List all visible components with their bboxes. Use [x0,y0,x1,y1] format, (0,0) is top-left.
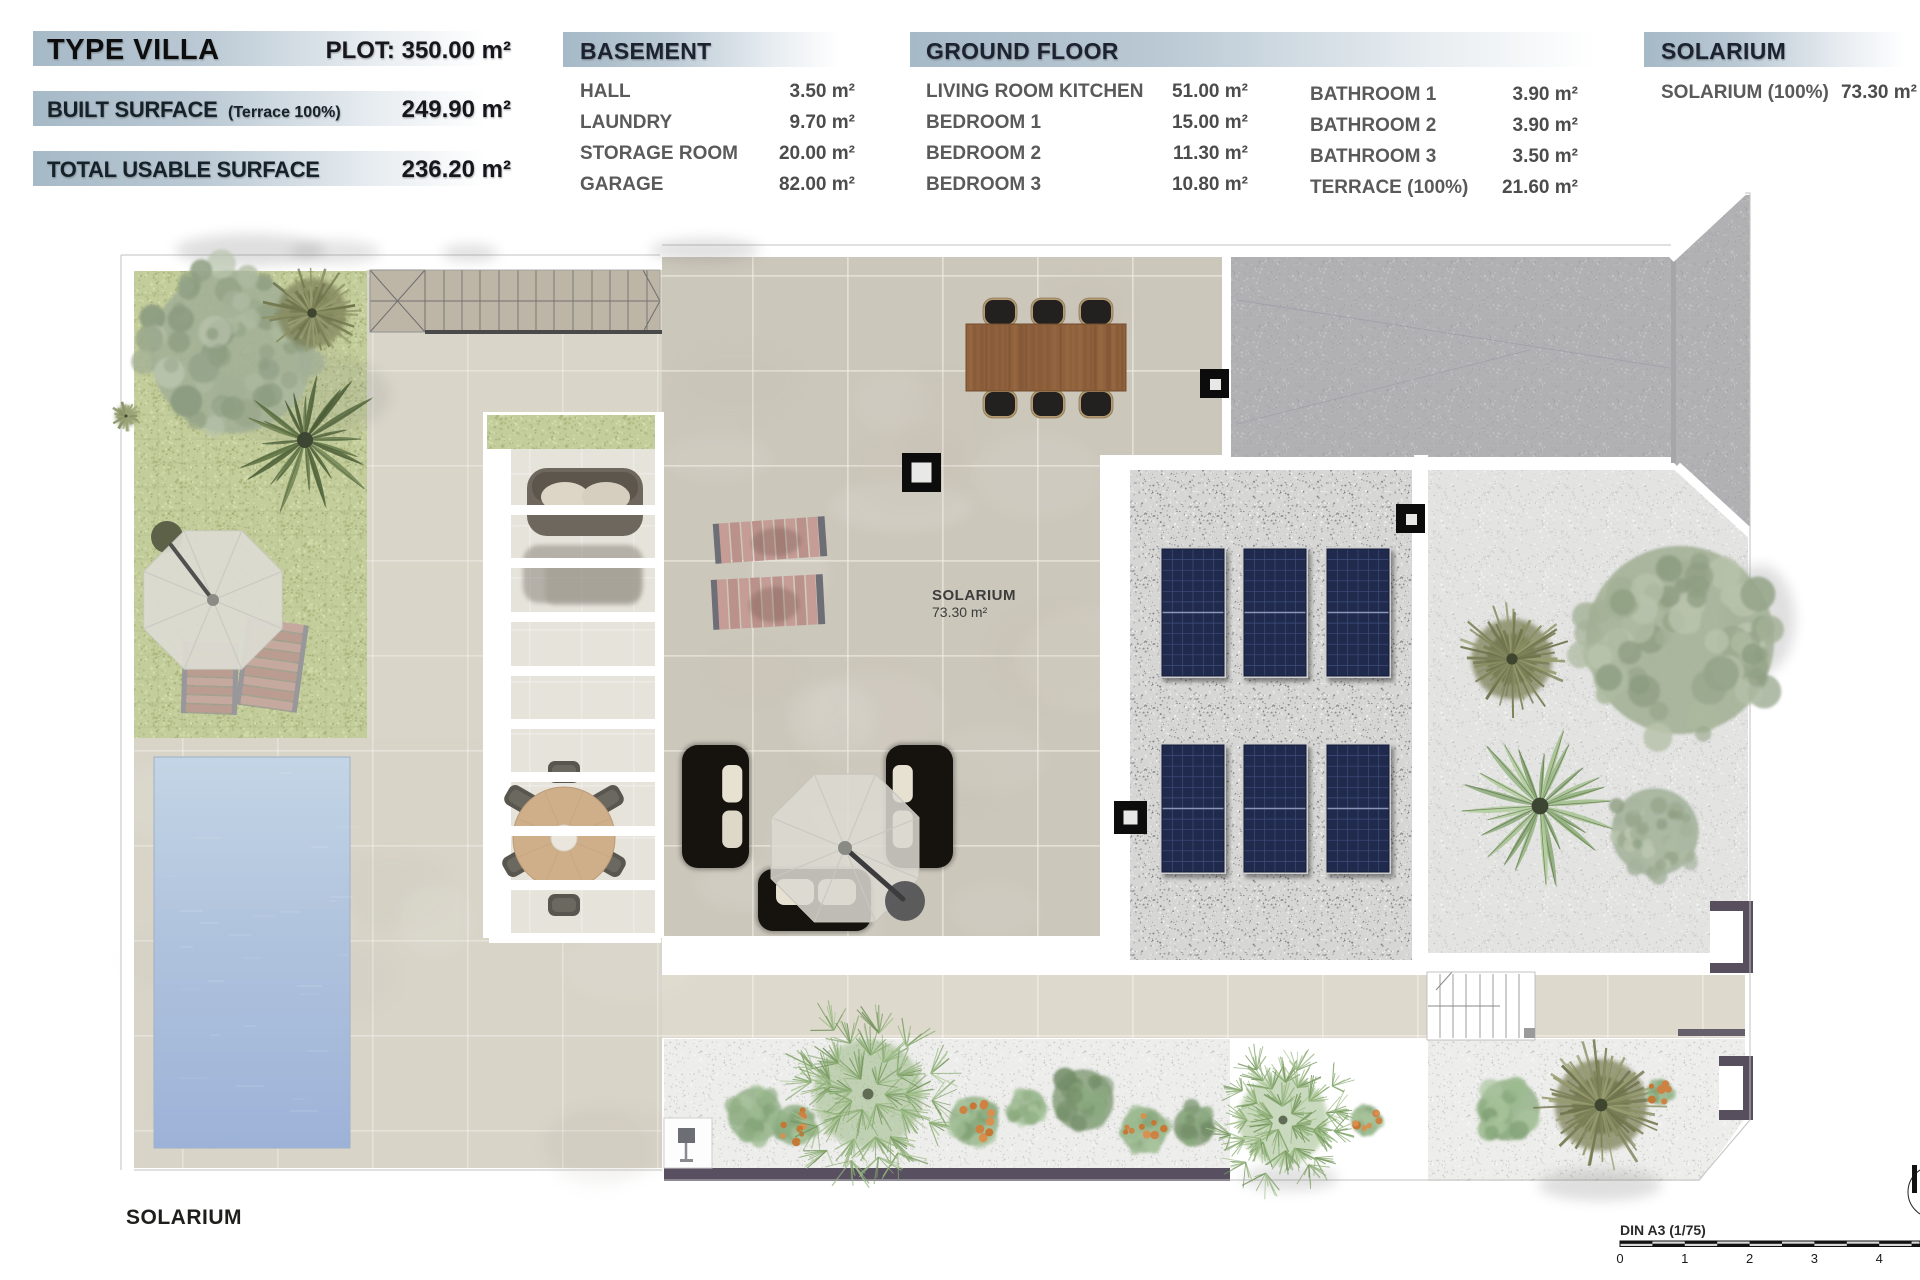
svg-text:BASEMENT: BASEMENT [580,38,711,64]
svg-text:TERRACE (100%): TERRACE (100%) [1310,177,1468,198]
svg-text:BATHROOM 3: BATHROOM 3 [1310,146,1436,167]
svg-text:2: 2 [1746,1251,1753,1266]
svg-text:BEDROOM 1: BEDROOM 1 [926,112,1042,133]
svg-text:249.90 m²: 249.90 m² [402,96,511,123]
svg-text:51.00 m²: 51.00 m² [1172,81,1248,102]
svg-text:BEDROOM 2: BEDROOM 2 [926,143,1041,164]
svg-text:HALL: HALL [580,81,631,102]
svg-text:3.50 m²: 3.50 m² [790,81,855,102]
svg-text:SOLARIUM: SOLARIUM [932,587,1016,604]
svg-text:73.30 m²: 73.30 m² [932,604,988,620]
svg-text:10.80 m²: 10.80 m² [1172,174,1248,195]
svg-text:BUILT SURFACE: BUILT SURFACE [47,97,217,122]
svg-text:GROUND FLOOR: GROUND FLOOR [926,38,1119,64]
svg-text:LIVING ROOM KITCHEN: LIVING ROOM KITCHEN [926,81,1143,102]
svg-text:PLOT: 350.00 m²: PLOT: 350.00 m² [326,37,511,64]
svg-text:82.00 m²: 82.00 m² [779,174,855,195]
svg-text:4: 4 [1876,1251,1883,1266]
svg-text:DIN A3 (1/75): DIN A3 (1/75) [1620,1222,1706,1238]
svg-text:0: 0 [1616,1251,1623,1266]
svg-text:SOLARIUM (100%): SOLARIUM (100%) [1661,82,1829,103]
svg-text:GARAGE: GARAGE [580,174,663,195]
svg-text:236.20 m²: 236.20 m² [402,156,511,183]
svg-text:(Terrace 100%): (Terrace 100%) [228,104,341,121]
svg-text:9.70 m²: 9.70 m² [790,112,855,133]
svg-text:3.90 m²: 3.90 m² [1513,115,1578,136]
svg-text:LAUNDRY: LAUNDRY [580,112,673,133]
svg-text:SOLARIUM: SOLARIUM [1661,38,1786,64]
svg-text:11.30 m²: 11.30 m² [1173,143,1248,164]
svg-text:3: 3 [1811,1251,1818,1266]
svg-text:3.50 m²: 3.50 m² [1513,146,1578,167]
svg-text:73.30 m²: 73.30 m² [1841,82,1917,103]
svg-text:TYPE VILLA: TYPE VILLA [47,34,220,66]
svg-text:BEDROOM 3: BEDROOM 3 [926,174,1041,195]
svg-text:BATHROOM 1: BATHROOM 1 [1310,84,1437,105]
svg-text:20.00 m²: 20.00 m² [779,143,855,164]
svg-text:3.90 m²: 3.90 m² [1513,84,1578,105]
svg-text:15.00 m²: 15.00 m² [1172,112,1248,133]
svg-text:BATHROOM 2: BATHROOM 2 [1310,115,1436,136]
svg-text:TOTAL USABLE SURFACE: TOTAL USABLE SURFACE [47,157,320,182]
svg-text:STORAGE ROOM: STORAGE ROOM [580,143,738,164]
svg-text:SOLARIUM: SOLARIUM [126,1206,242,1229]
svg-text:1: 1 [1681,1251,1688,1266]
svg-text:21.60 m²: 21.60 m² [1502,177,1578,198]
